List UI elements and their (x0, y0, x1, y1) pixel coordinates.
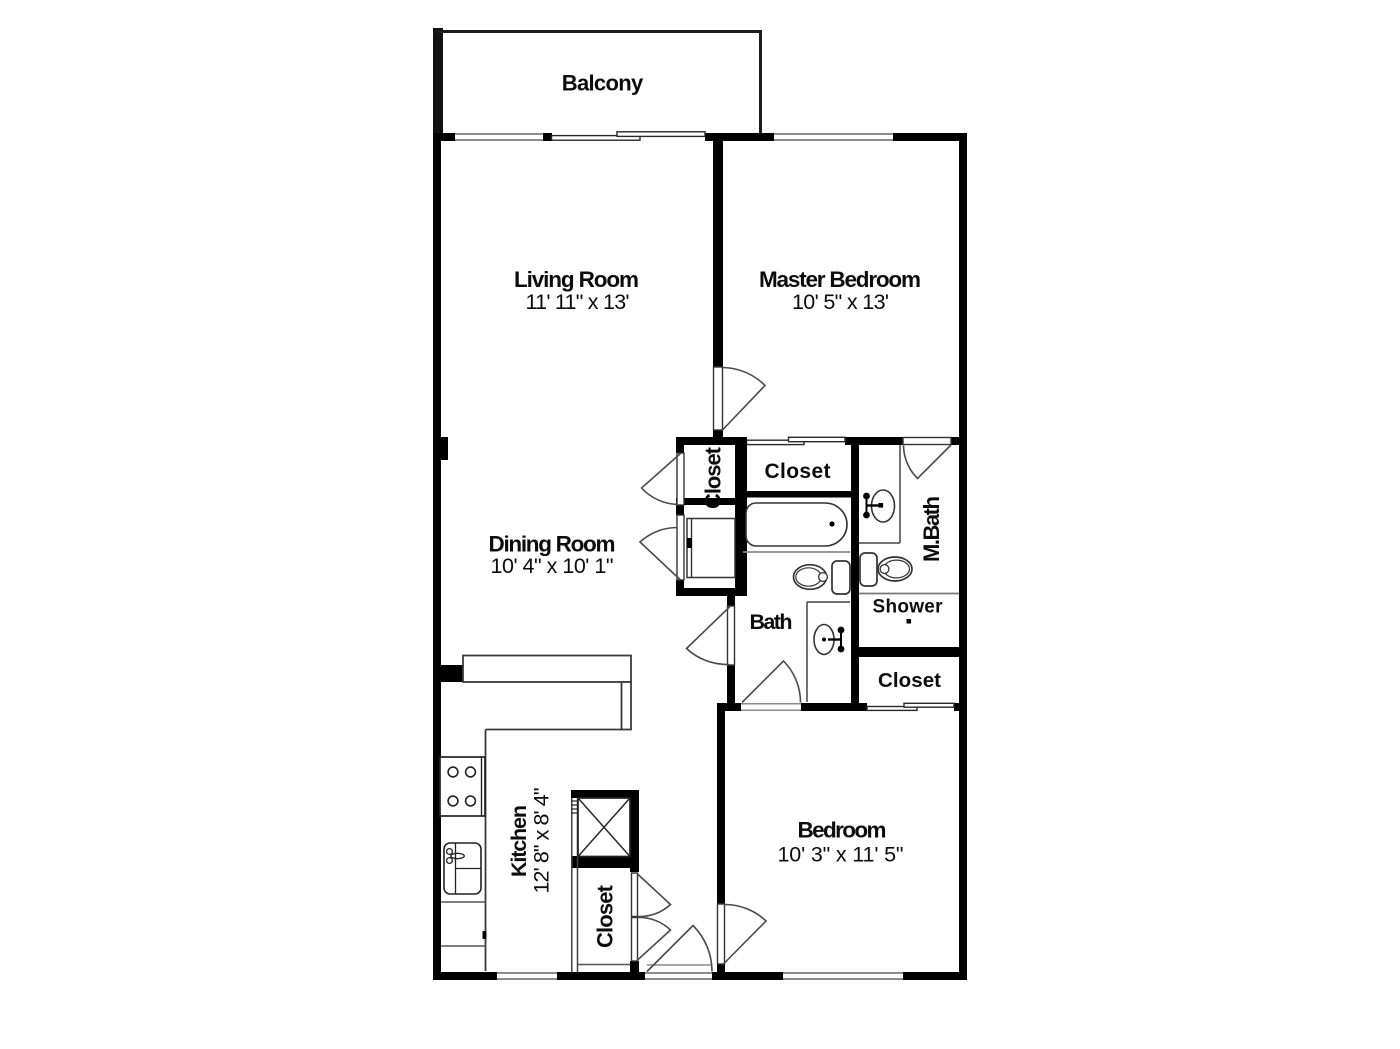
svg-text:Bedroom: Bedroom (798, 818, 887, 843)
svg-text:Dining Room: Dining Room (489, 532, 616, 557)
svg-text:10' 3" x 11' 5": 10' 3" x 11' 5" (778, 843, 904, 867)
svg-text:Closet: Closet (878, 669, 941, 692)
svg-text:Shower: Shower (873, 597, 944, 618)
svg-text:Closet: Closet (593, 884, 618, 948)
svg-text:Kitchen: Kitchen (507, 805, 531, 877)
svg-text:10' 5" x 13': 10' 5" x 13' (792, 290, 889, 314)
svg-text:Bath: Bath (750, 610, 793, 634)
svg-text:11' 11" x 13': 11' 11" x 13' (526, 290, 630, 314)
svg-text:Master Bedroom: Master Bedroom (759, 267, 921, 292)
svg-text:Living Room: Living Room (514, 267, 639, 292)
svg-text:12' 8" x 8' 4": 12' 8" x 8' 4" (530, 788, 554, 894)
svg-text:Closet: Closet (701, 446, 726, 509)
svg-text:Balcony: Balcony (562, 71, 644, 96)
svg-text:Closet: Closet (765, 460, 831, 483)
svg-text:M.Bath: M.Bath (919, 496, 944, 562)
svg-text:10' 4" x 10' 1": 10' 4" x 10' 1" (491, 554, 614, 578)
